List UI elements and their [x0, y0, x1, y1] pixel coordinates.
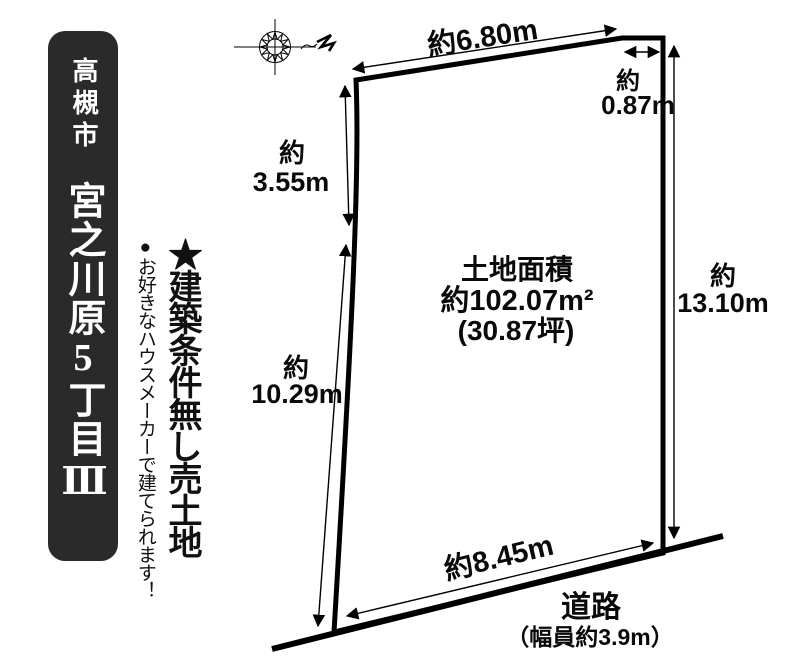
dim-label-left-upper-prefix: 約	[279, 138, 305, 168]
land-flyer: 高槻市 宮之川原5丁目Ⅲ ★建築条件無し売土地 ●お好きなハウスメーカーで建てら…	[0, 0, 800, 671]
road-label: 道路	[561, 591, 622, 624]
area-title-label: 土地面積	[461, 254, 573, 285]
dim-label-top-right: 0.87m	[601, 90, 675, 120]
area-value-label: 約102.07m²	[440, 283, 593, 317]
dim-label-right: 13.10m	[677, 288, 769, 318]
land-plot-diagram: 約6.80m 約 0.87m 約 13.10m 約 3.55m 約 10.29m…	[0, 0, 800, 671]
dim-line-left-upper	[345, 86, 349, 225]
compass-rose-icon	[234, 19, 334, 75]
north-mark-icon	[301, 35, 334, 51]
area-tsubo-label: (30.87坪)	[458, 315, 575, 346]
road-width-label: （幅員約3.9m）	[506, 624, 673, 650]
dim-label-left-lower: 10.29m	[251, 379, 343, 409]
dim-label-right-prefix: 約	[710, 261, 736, 291]
dim-label-left-upper: 3.55m	[253, 167, 330, 197]
